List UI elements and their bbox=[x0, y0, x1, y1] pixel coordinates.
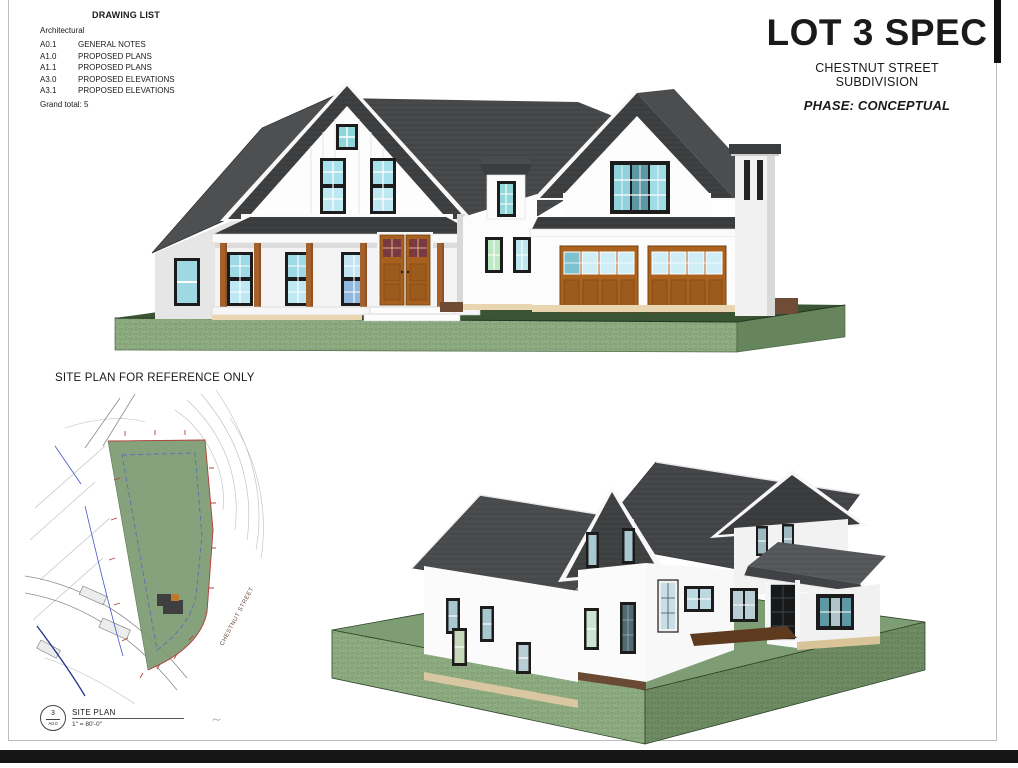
tower bbox=[729, 144, 781, 316]
garage-door bbox=[560, 246, 638, 312]
revision-squiggle: 〜 bbox=[211, 712, 222, 726]
sheet-number: A0.1 bbox=[40, 39, 78, 51]
sheet-number: A1.0 bbox=[40, 51, 78, 63]
sheet-name: GENERAL NOTES bbox=[78, 39, 146, 51]
gable-picture-window bbox=[610, 161, 670, 214]
sheet-number: A1.1 bbox=[40, 62, 78, 74]
callout-scale: 1" = 80'-0" bbox=[72, 721, 184, 728]
site-plan-drawing: CHESTNUT STREET bbox=[25, 388, 297, 714]
page-title: LOT 3 SPEC bbox=[746, 14, 1008, 51]
front-door bbox=[377, 232, 433, 308]
callout-title: SITE PLAN bbox=[72, 708, 184, 719]
table-row: A0.1 GENERAL NOTES bbox=[40, 39, 250, 51]
detail-bubble: 3 A0.0 bbox=[40, 705, 66, 731]
upper-window bbox=[320, 158, 346, 214]
dormer bbox=[479, 159, 533, 219]
upper-window bbox=[370, 158, 396, 214]
sheet-name: PROPOSED PLANS bbox=[78, 51, 152, 63]
grass-platform bbox=[115, 318, 737, 352]
street-label: CHESTNUT STREET bbox=[219, 586, 255, 647]
front-exterior-rendering bbox=[108, 76, 852, 360]
table-row: A1.1 PROPOSED PLANS bbox=[40, 62, 250, 74]
sheet-number: A3.0 bbox=[40, 74, 78, 86]
drawing-list-title: DRAWING LIST bbox=[40, 10, 212, 20]
sheet-name: PROPOSED PLANS bbox=[78, 62, 152, 74]
site-plan-heading: SITE PLAN FOR REFERENCE ONLY bbox=[55, 372, 255, 384]
detail-number: 3 bbox=[46, 710, 60, 720]
rear-exterior-rendering bbox=[320, 420, 940, 760]
porch-window bbox=[227, 252, 253, 306]
garage-door bbox=[648, 246, 726, 312]
architectural-cover-sheet: { "sheet": { "background": "#ffffff", "b… bbox=[0, 0, 1018, 768]
callout-text: SITE PLAN 1" = 80'-0" bbox=[72, 705, 184, 728]
site-plan-callout: 3 A0.0 SITE PLAN 1" = 80'-0" 〜 bbox=[40, 705, 221, 731]
table-row: A1.0 PROPOSED PLANS bbox=[40, 51, 250, 63]
neighbor-buildings bbox=[37, 586, 131, 658]
sheet-number: A3.1 bbox=[40, 85, 78, 97]
drawing-list-category: Architectural bbox=[40, 26, 250, 35]
detail-sheet-number: A0.0 bbox=[48, 720, 57, 727]
